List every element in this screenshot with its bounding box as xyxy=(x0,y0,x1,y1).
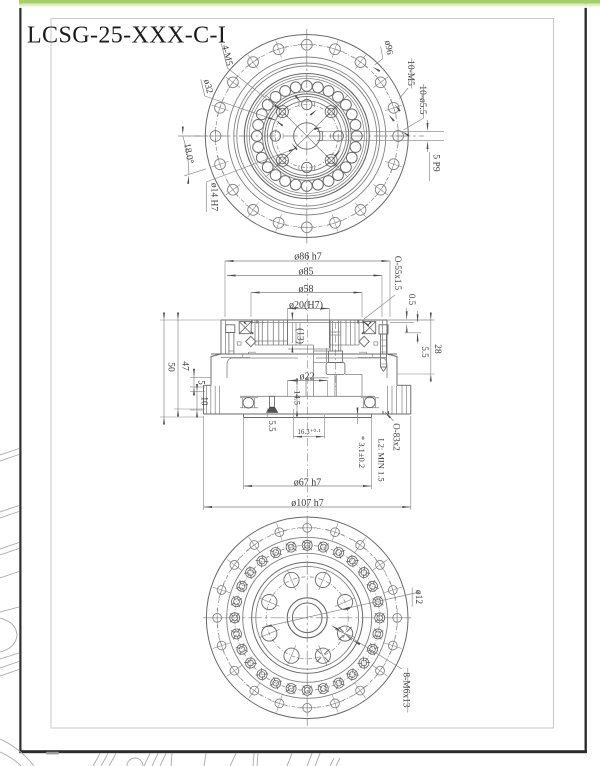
svg-text:ø85: ø85 xyxy=(299,266,314,277)
svg-text:LCSG-25-XXX-C-I: LCSG-25-XXX-C-I xyxy=(27,23,226,49)
svg-text:5.5: 5.5 xyxy=(420,346,430,358)
svg-text:5 P9: 5 P9 xyxy=(431,154,441,171)
svg-text:O-83x2: O-83x2 xyxy=(392,423,402,451)
svg-text:5: 5 xyxy=(197,380,207,385)
svg-text:ø67 h7: ø67 h7 xyxy=(294,477,322,488)
svg-text:ø20(H7): ø20(H7) xyxy=(289,300,323,311)
svg-text:47: 47 xyxy=(180,361,190,371)
svg-text:10-M5: 10-M5 xyxy=(405,60,415,86)
svg-text:ø22: ø22 xyxy=(300,372,315,383)
svg-text:O-55x1.5: O-55x1.5 xyxy=(393,256,403,291)
svg-text:(13): (13) xyxy=(295,328,306,344)
svg-text:ø86 h7: ø86 h7 xyxy=(294,252,322,263)
svg-text:ø14 H7: ø14 H7 xyxy=(209,183,219,211)
svg-text:ø107 h7: ø107 h7 xyxy=(291,498,324,509)
svg-text:L2: MIN 1.5: L2: MIN 1.5 xyxy=(377,438,387,481)
svg-text:ø12: ø12 xyxy=(413,590,423,605)
svg-text:50: 50 xyxy=(166,362,176,372)
svg-text:5.5: 5.5 xyxy=(267,420,277,432)
svg-text:16.3⁺⁰·¹: 16.3⁺⁰·¹ xyxy=(297,428,320,436)
svg-text:14.5: 14.5 xyxy=(293,390,303,405)
svg-text:0.5: 0.5 xyxy=(407,294,417,306)
svg-text:28: 28 xyxy=(432,344,442,354)
svg-text:10-ø5.5: 10-ø5.5 xyxy=(417,85,427,115)
svg-text:8-M6x13: 8-M6x13 xyxy=(401,672,411,708)
svg-text:ø58: ø58 xyxy=(299,284,314,295)
svg-text:* 3.1±0.2: * 3.1±0.2 xyxy=(357,436,367,468)
svg-text:10: 10 xyxy=(200,397,210,407)
